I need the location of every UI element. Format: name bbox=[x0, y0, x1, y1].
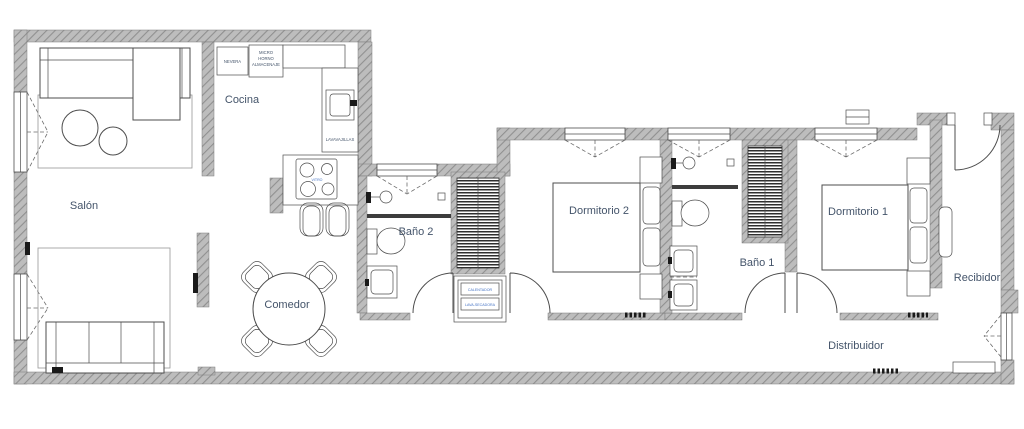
wall-bath2-left bbox=[357, 176, 367, 313]
entrance-jamb-right bbox=[984, 113, 992, 125]
label-calentador: CALENTADOR bbox=[468, 288, 493, 292]
wall-pillar-bottom bbox=[198, 367, 215, 375]
wall-left-b bbox=[14, 172, 27, 274]
label-bano1: Baño 1 bbox=[740, 257, 775, 269]
utility-closet bbox=[454, 276, 506, 322]
kitchen-sink bbox=[326, 90, 357, 120]
wall-corner-topright bbox=[991, 113, 1014, 130]
label-lava-secadora: LAVA-SECADORA bbox=[465, 303, 496, 307]
wall-mark-left bbox=[25, 242, 30, 255]
wall-mark-bottom bbox=[52, 367, 63, 373]
upper-cabinet bbox=[283, 45, 345, 68]
toilet-bano1 bbox=[672, 200, 709, 226]
label-cocina: Cocina bbox=[225, 94, 260, 106]
floor-plan-svg: Salón Cocina Comedor Baño 2 Dormitorio 2… bbox=[0, 0, 1024, 429]
wall-kitchen-right bbox=[358, 42, 372, 176]
label-nevera: NEVERA bbox=[224, 59, 241, 64]
sink2-bano1 bbox=[668, 280, 697, 310]
coffee-table-large bbox=[62, 110, 98, 146]
sink-bano2 bbox=[365, 266, 397, 298]
sofa-three-seat bbox=[46, 322, 164, 373]
pillow-dorm1-a bbox=[910, 188, 927, 223]
wall-bottom bbox=[14, 372, 1014, 384]
pillow-dorm2-b bbox=[643, 228, 660, 266]
label-distribuidor: Distribuidor bbox=[828, 340, 884, 352]
vanity-line-bano1 bbox=[672, 185, 738, 189]
wall-bath2-top-a bbox=[358, 164, 377, 176]
label-horno: HORNO bbox=[258, 56, 274, 61]
radiator-recibidor-wall bbox=[939, 207, 952, 257]
wall-right-step bbox=[1001, 290, 1018, 313]
label-salon: Salón bbox=[70, 200, 98, 212]
nightstand-dorm2-a bbox=[640, 157, 662, 183]
wall-partition-stub bbox=[197, 233, 209, 307]
label-bano2: Baño 2 bbox=[399, 226, 434, 238]
wall-left-a bbox=[14, 30, 27, 92]
wall-top-a bbox=[497, 128, 565, 140]
sink1-bano1 bbox=[668, 246, 697, 276]
bed-dorm2 bbox=[553, 183, 640, 272]
label-dormitorio2: Dormitorio 2 bbox=[569, 205, 629, 217]
nightstand-dorm1-a bbox=[907, 158, 930, 184]
wall-kitchen-stub bbox=[270, 178, 283, 213]
tv-unit bbox=[193, 273, 198, 293]
wall-salon-cocina bbox=[202, 42, 214, 176]
label-comedor: Comedor bbox=[264, 299, 310, 311]
wall-dorm1-recibidor bbox=[930, 120, 942, 288]
coffee-table-small bbox=[99, 127, 127, 155]
wall-corridor-c bbox=[665, 313, 742, 320]
label-dormitorio1: Dormitorio 1 bbox=[828, 206, 888, 218]
wall-right-a bbox=[1001, 130, 1014, 290]
wall-top-b bbox=[625, 128, 668, 140]
vanity-line-bano2 bbox=[367, 214, 451, 218]
wall-corridor-b bbox=[548, 313, 665, 320]
nightstand-dorm1-b bbox=[907, 271, 930, 296]
label-lavavajillas: LAVAVAJILLAS bbox=[326, 137, 355, 142]
wall-right-b bbox=[1001, 360, 1014, 384]
label-almacenaje: ALMACENAJE bbox=[252, 62, 280, 67]
wall-corridor-a bbox=[360, 313, 410, 320]
wall-top-d bbox=[877, 128, 917, 140]
nightstand-dorm2-b bbox=[640, 274, 662, 299]
entrance-jamb-left bbox=[947, 113, 955, 125]
floor-plan: Salón Cocina Comedor Baño 2 Dormitorio 2… bbox=[0, 0, 1024, 429]
wall-top-c bbox=[730, 128, 815, 140]
bed-dorm1 bbox=[822, 185, 908, 270]
pillow-dorm2-a bbox=[643, 187, 660, 224]
wall-top-left bbox=[14, 30, 371, 42]
label-recibidor: Recibidor bbox=[954, 272, 1001, 284]
label-micro: MICRO bbox=[259, 50, 274, 55]
pillow-dorm1-b bbox=[910, 227, 927, 263]
label-vitro: VITRO bbox=[312, 178, 323, 182]
radiator-recibidor-bottom bbox=[953, 362, 995, 373]
